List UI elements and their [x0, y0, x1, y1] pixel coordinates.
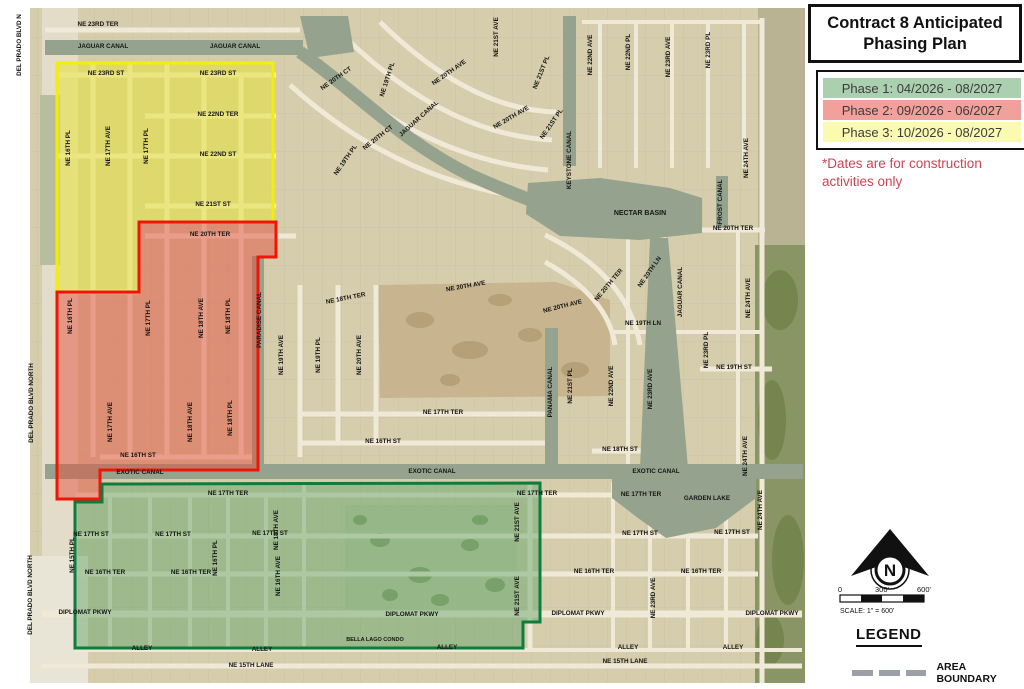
map-label: NE 17TH TER — [423, 409, 464, 416]
map-label: NE 17TH TER — [208, 490, 249, 497]
map-label: NE 15TH PL — [69, 537, 76, 573]
title-line2: Phasing Plan — [811, 34, 1019, 55]
map-label: NE 21ST AVE — [514, 576, 521, 616]
map-label: NE 22ND PL — [625, 34, 632, 71]
title-line1: Contract 8 Anticipated — [811, 13, 1019, 34]
map-label: NE 20TH TER — [713, 225, 754, 232]
map-label: NE 18TH PL — [225, 298, 232, 334]
phase-2-row: Phase 2: 09/2026 - 06/2027 — [823, 100, 1021, 120]
map-label: NE 22ND ST — [200, 151, 237, 158]
map-label: DIPLOMAT PKWY — [58, 609, 112, 616]
map-label: NE 16TH ST — [365, 438, 401, 445]
page: { "title": {"line1": "Contract 8 Anticip… — [0, 0, 1024, 689]
area-boundary-dash — [879, 670, 900, 676]
terrain — [518, 328, 542, 342]
terrain — [772, 515, 804, 605]
terrain — [440, 374, 460, 386]
scale-tick-300: 300' — [875, 585, 890, 594]
map-label: EXOTIC CANAL — [408, 468, 455, 475]
zone-phase1-green — [75, 483, 540, 648]
map-label: NE 16TH ST — [120, 452, 156, 459]
map-label: NE 19TH PL — [315, 337, 322, 373]
scale-caption: SCALE: 1" = 600' — [840, 608, 894, 615]
map-label: JAGUAR CANAL — [78, 43, 129, 50]
map-label: NE 24TH AVE — [757, 490, 764, 530]
map-label: NE 24TH AVE — [745, 278, 752, 318]
map-label: NE 23RD ST — [200, 70, 237, 77]
map-label: NE 20TH AVE — [356, 335, 363, 375]
map-label: NE 23RD ST — [88, 70, 125, 77]
map-label: DEL PRADO BLVD NORTH — [28, 363, 35, 443]
legend-heading: LEGEND — [856, 626, 922, 647]
map-label: DIPLOMAT PKWY — [745, 610, 799, 617]
map-label: JAGUAR CANAL — [210, 43, 261, 50]
terrain — [561, 362, 589, 378]
map-label: DIPLOMAT PKWY — [385, 611, 439, 618]
scale-bar: 0 300' 600' SCALE: 1" = 600' — [836, 584, 946, 620]
phase-legend: Phase 1: 04/2026 - 08/2027 Phase 2: 09/2… — [816, 70, 1024, 150]
map-label: PANAMA CANAL — [547, 366, 554, 417]
map-label: NE 15TH LANE — [603, 658, 648, 665]
map-label: NE 23RD PL — [705, 32, 712, 69]
map-label: NE 15TH LANE — [229, 662, 274, 669]
map-label: NE 17TH AVE — [105, 126, 112, 166]
title-box: Contract 8 Anticipated Phasing Plan — [808, 4, 1022, 63]
terrain — [762, 270, 798, 330]
map-label: NE 17TH ST — [714, 529, 750, 536]
map-label: KEYSTONE CANAL — [566, 131, 573, 189]
map-label: NE 16TH TER — [85, 569, 126, 576]
map-label: NE 16TH TER — [574, 568, 615, 575]
construction-note: *Dates are for construction activities o… — [822, 155, 1018, 190]
map-label: NE 19TH LN — [625, 320, 661, 327]
map-label: NE 22ND AVE — [608, 366, 615, 407]
map-label: NE 17TH ST — [622, 530, 658, 537]
compass-n: N — [884, 561, 896, 580]
map-label: NE 18TH AVE — [273, 510, 280, 550]
map-label: NE 23RD AVE — [647, 369, 654, 410]
map-label: NE 17TH TER — [517, 490, 558, 497]
area-boundary-legend: AREA BOUNDARY — [852, 661, 1024, 685]
map-label: PARADISE CANAL — [256, 292, 263, 348]
map-label: NE 24TH AVE — [743, 138, 750, 178]
map-label: NE 17TH TER — [621, 491, 662, 498]
map-label: NE 21ST PL — [567, 368, 574, 403]
terrain — [488, 294, 512, 306]
map-label: NE 18TH AVE — [198, 298, 205, 338]
map-label: NE 17TH ST — [155, 531, 191, 538]
phase-1-row: Phase 1: 04/2026 - 08/2027 — [823, 78, 1021, 98]
map-label: NE 23RD AVE — [665, 37, 672, 78]
map-label: NE 16TH PL — [65, 130, 72, 166]
map-label: GARDEN LAKE — [684, 495, 730, 502]
map-label: EXOTIC CANAL — [632, 468, 679, 475]
area-boundary-dash — [906, 670, 927, 676]
map-label: NE 23RD AVE — [650, 578, 657, 619]
map-label: DEL PRADO BLVD N — [16, 14, 23, 76]
map-label: NE 17TH ST — [73, 531, 109, 538]
map-label: NE 21ST ST — [195, 201, 230, 208]
map-label: NE 16TH TER — [171, 569, 212, 576]
map-label: NE 16TH AVE — [275, 556, 282, 596]
area-boundary-label: AREA BOUNDARY — [936, 661, 1024, 685]
map-label: NE 17TH AVE — [107, 402, 114, 442]
map-label: ALLEY — [618, 644, 639, 651]
map-label: NE 19TH AVE — [278, 335, 285, 375]
map-label: NE 22ND TER — [198, 111, 239, 118]
map-label: NE 21ST AVE — [493, 17, 500, 57]
map-label: NECTAR BASIN — [614, 210, 666, 217]
map-label: ALLEY — [252, 646, 273, 653]
note-line2: activities only — [822, 173, 1018, 191]
map-label: NE 17TH PL — [143, 128, 150, 164]
map-label: BELLA LAGO CONDO — [346, 637, 404, 643]
map-label: ALLEY — [723, 644, 744, 651]
map-label: JAGUAR CANAL — [677, 267, 684, 318]
map-label: NE 18TH AVE — [187, 402, 194, 442]
map-label: NE 16TH PL — [67, 298, 74, 334]
map-label: NE 23RD PL — [703, 332, 710, 369]
map-label: NE 16TH TER — [681, 568, 722, 575]
map-label: NE 21ST AVE — [514, 502, 521, 542]
map-label: NE 19TH ST — [716, 364, 752, 371]
map-label: NE 16TH PL — [212, 540, 219, 576]
map-label: NE 17TH ST — [252, 530, 288, 537]
scale-tick-0: 0 — [838, 585, 842, 594]
terrain — [452, 341, 488, 359]
map-label: ALLEY — [437, 644, 458, 651]
map-label: NE 24TH AVE — [742, 436, 749, 476]
area-boundary-dash — [852, 670, 873, 676]
map-label: ALLEY — [132, 645, 153, 652]
map-label: EXOTIC CANAL — [116, 469, 163, 476]
map-label: NE 20TH TER — [190, 231, 231, 238]
map-label: DEL PRADO BLVD NORTH — [27, 555, 34, 635]
terrain — [406, 312, 434, 328]
map-label: NE 22ND AVE — [587, 35, 594, 76]
scale-tick-600: 600' — [917, 585, 932, 594]
map-label: NE 17TH PL — [145, 300, 152, 336]
map-label: FROST CANAL — [717, 179, 724, 224]
map-label: DIPLOMAT PKWY — [551, 610, 605, 617]
map-label: NE 18TH ST — [602, 446, 638, 453]
map-label: NE 18TH PL — [227, 400, 234, 436]
phase-3-row: Phase 3: 10/2026 - 08/2027 — [823, 122, 1021, 142]
map-label: NE 23RD TER — [78, 21, 119, 28]
note-line1: *Dates are for construction — [822, 155, 1018, 173]
